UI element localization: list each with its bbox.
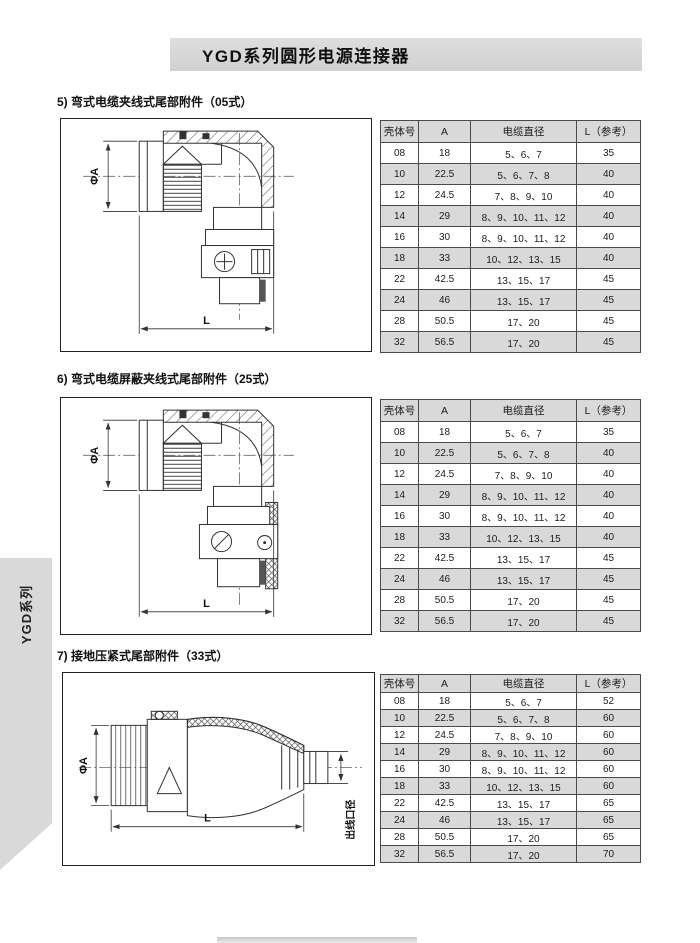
- table-row: 16308、9、10、11、1240: [381, 506, 641, 527]
- section-title-05: 5) 弯式电缆夹线式尾部附件（05式）: [57, 93, 252, 110]
- footer-bar: [217, 937, 417, 943]
- col-cable-diameter: 电缆直径: [471, 121, 577, 143]
- table-cell: 40: [577, 464, 641, 485]
- table-cell: 22.5: [419, 710, 471, 727]
- table-cell: 5、6、7: [471, 143, 577, 164]
- section-title-33: 7) 接地压紧式尾部附件（33式）: [57, 647, 228, 664]
- table-cell: 40: [577, 227, 641, 248]
- table-cell: 50.5: [419, 829, 471, 846]
- table-cell: 45: [577, 611, 641, 632]
- table-cell: 52: [577, 693, 641, 710]
- table-cell: 56.5: [419, 332, 471, 353]
- phi-a-label: ΦA: [78, 757, 90, 774]
- table-row: 14298、9、10、11、1240: [381, 485, 641, 506]
- table-cell: 29: [419, 744, 471, 761]
- table-cell: 30: [419, 506, 471, 527]
- table-cell: 8、9、10、11、12: [471, 744, 577, 761]
- l-label: L: [203, 315, 210, 327]
- col-shell-size: 壳体号: [381, 675, 419, 693]
- table-row: 3256.517、2045: [381, 611, 641, 632]
- table-cell: 40: [577, 506, 641, 527]
- table-cell: 60: [577, 778, 641, 795]
- series-side-tab: YGD系列: [0, 558, 52, 870]
- table-cell: 45: [577, 590, 641, 611]
- table-cell: 8、9、10、11、12: [471, 206, 577, 227]
- table-cell: 08: [381, 422, 419, 443]
- table-cell: 45: [577, 311, 641, 332]
- col-cable-diameter: 电缆直径: [471, 675, 577, 693]
- table-cell: 10: [381, 443, 419, 464]
- col-cable-diameter: 电缆直径: [471, 400, 577, 422]
- table-cell: 45: [577, 290, 641, 311]
- table-cell: 14: [381, 485, 419, 506]
- table-cell: 08: [381, 143, 419, 164]
- table-row: 2242.513、15、1745: [381, 269, 641, 290]
- table-cell: 10、12、13、15: [471, 527, 577, 548]
- table-cell: 70: [577, 846, 641, 863]
- technical-drawing-33: ΦA L 出线口径: [62, 672, 375, 866]
- table-cell: 65: [577, 795, 641, 812]
- table-cell: 5、6、7、8: [471, 443, 577, 464]
- table-cell: 18: [419, 143, 471, 164]
- table-cell: 50.5: [419, 311, 471, 332]
- table-row: 2242.513、15、1765: [381, 795, 641, 812]
- table-cell: 45: [577, 269, 641, 290]
- table-cell: 40: [577, 185, 641, 206]
- table-cell: 46: [419, 290, 471, 311]
- table-row: 183310、12、13、1540: [381, 527, 641, 548]
- table-cell: 17、20: [471, 611, 577, 632]
- table-cell: 22: [381, 795, 419, 812]
- spec-table-25: 壳体号 A 电缆直径 L（参考） 08185、6、7351022.55、6、7、…: [380, 399, 641, 632]
- table-cell: 17、20: [471, 590, 577, 611]
- table-cell: 24.5: [419, 464, 471, 485]
- table-cell: 28: [381, 590, 419, 611]
- table-cell: 65: [577, 829, 641, 846]
- table-cell: 13、15、17: [471, 290, 577, 311]
- table-cell: 12: [381, 464, 419, 485]
- table-cell: 40: [577, 164, 641, 185]
- phi-a-label: ΦA: [89, 168, 101, 185]
- table-cell: 45: [577, 569, 641, 590]
- phi-a-label: ΦA: [89, 447, 101, 464]
- connector-outline: [139, 410, 277, 589]
- l-label: L: [203, 598, 210, 610]
- table-row: 16308、9、10、11、1240: [381, 227, 641, 248]
- table-cell: 42.5: [419, 548, 471, 569]
- table-cell: 17、20: [471, 829, 577, 846]
- table-row: 2850.517、2045: [381, 590, 641, 611]
- table-cell: 33: [419, 248, 471, 269]
- table-row: 2850.517、2065: [381, 829, 641, 846]
- table-cell: 24.5: [419, 727, 471, 744]
- table-cell: 10: [381, 164, 419, 185]
- table-cell: 5、6、7: [471, 693, 577, 710]
- table-cell: 7、8、9、10: [471, 185, 577, 206]
- table-row: 1224.57、8、9、1040: [381, 464, 641, 485]
- table-cell: 29: [419, 206, 471, 227]
- table-cell: 32: [381, 611, 419, 632]
- table-cell: 16: [381, 761, 419, 778]
- series-side-tab-label-wrap: YGD系列: [0, 562, 52, 666]
- table-row: 1224.57、8、9、1060: [381, 727, 641, 744]
- table-cell: 14: [381, 744, 419, 761]
- table-cell: 12: [381, 727, 419, 744]
- table-row: 183310、12、13、1560: [381, 778, 641, 795]
- table-cell: 32: [381, 846, 419, 863]
- table-cell: 16: [381, 227, 419, 248]
- table-cell: 12: [381, 185, 419, 206]
- table-cell: 35: [577, 422, 641, 443]
- table-cell: 65: [577, 812, 641, 829]
- table-cell: 16: [381, 506, 419, 527]
- table-cell: 17、20: [471, 311, 577, 332]
- table-cell: 45: [577, 548, 641, 569]
- table-row: 1022.55、6、7、840: [381, 443, 641, 464]
- table-cell: 8、9、10、11、12: [471, 227, 577, 248]
- table-cell: 7、8、9、10: [471, 727, 577, 744]
- table-cell: 17、20: [471, 846, 577, 863]
- outlet-diameter-label: 出线口径: [344, 800, 357, 840]
- table-row: 14298、9、10、11、1260: [381, 744, 641, 761]
- table-row: 183310、12、13、1540: [381, 248, 641, 269]
- table-cell: 46: [419, 812, 471, 829]
- table-cell: 22.5: [419, 443, 471, 464]
- table-row: 1022.55、6、7、840: [381, 164, 641, 185]
- table-cell: 24: [381, 812, 419, 829]
- table-cell: 13、15、17: [471, 795, 577, 812]
- table-cell: 18: [381, 778, 419, 795]
- col-shell-size: 壳体号: [381, 121, 419, 143]
- table-cell: 22: [381, 548, 419, 569]
- page-title: YGD系列圆形电源连接器: [202, 42, 410, 67]
- table-cell: 40: [577, 485, 641, 506]
- table-cell: 5、6、7、8: [471, 164, 577, 185]
- drawing-25-shielded-elbow-connector: ΦA L: [61, 398, 371, 634]
- table-cell: 8、9、10、11、12: [471, 506, 577, 527]
- table-row: 08185、6、735: [381, 422, 641, 443]
- table-cell: 5、6、7: [471, 422, 577, 443]
- table-cell: 18: [381, 248, 419, 269]
- table-cell: 28: [381, 829, 419, 846]
- table-cell: 5、6、7、8: [471, 710, 577, 727]
- col-l-ref: L（参考）: [577, 121, 641, 143]
- table-row: 16308、9、10、11、1260: [381, 761, 641, 778]
- table-row: 2242.513、15、1745: [381, 548, 641, 569]
- table-cell: 50.5: [419, 590, 471, 611]
- table-cell: 7、8、9、10: [471, 464, 577, 485]
- table-cell: 40: [577, 248, 641, 269]
- table-cell: 42.5: [419, 269, 471, 290]
- table-cell: 24: [381, 569, 419, 590]
- table-cell: 33: [419, 778, 471, 795]
- table-cell: 32: [381, 332, 419, 353]
- table-cell: 30: [419, 227, 471, 248]
- col-l-ref: L（参考）: [577, 400, 641, 422]
- page-header-banner: YGD系列圆形电源连接器: [170, 38, 642, 71]
- col-a: A: [419, 675, 471, 693]
- table-row: 3256.517、2045: [381, 332, 641, 353]
- table-cell: 60: [577, 727, 641, 744]
- table-cell: 18: [419, 693, 471, 710]
- table-cell: 8、9、10、11、12: [471, 761, 577, 778]
- table-cell: 10、12、13、15: [471, 248, 577, 269]
- table-row: 14298、9、10、11、1240: [381, 206, 641, 227]
- table-row: 2850.517、2045: [381, 311, 641, 332]
- table-cell: 24: [381, 290, 419, 311]
- table-cell: 13、15、17: [471, 812, 577, 829]
- table-cell: 13、15、17: [471, 548, 577, 569]
- table-cell: 10: [381, 710, 419, 727]
- spec-table-05: 壳体号 A 电缆直径 L（参考） 08185、6、7351022.55、6、7、…: [380, 120, 641, 353]
- table-row: 08185、6、735: [381, 143, 641, 164]
- table-cell: 17、20: [471, 332, 577, 353]
- table-cell: 45: [577, 332, 641, 353]
- table-cell: 22: [381, 269, 419, 290]
- table-row: 08185、6、752: [381, 693, 641, 710]
- table-header-row: 壳体号 A 电缆直径 L（参考）: [381, 400, 641, 422]
- table-cell: 56.5: [419, 611, 471, 632]
- table-header-row: 壳体号 A 电缆直径 L（参考）: [381, 121, 641, 143]
- l-label: L: [204, 813, 211, 825]
- table-cell: 24.5: [419, 185, 471, 206]
- table-cell: 42.5: [419, 795, 471, 812]
- table-row: 3256.517、2070: [381, 846, 641, 863]
- connector-outline: [139, 131, 273, 304]
- spec-table-33: 壳体号 A 电缆直径 L（参考） 08185、6、7521022.55、6、7、…: [380, 674, 641, 863]
- table-cell: 13、15、17: [471, 569, 577, 590]
- table-cell: 40: [577, 527, 641, 548]
- table-row: 1022.55、6、7、860: [381, 710, 641, 727]
- section-title-25: 6) 弯式电缆屏蔽夹线式尾部附件（25式）: [57, 370, 276, 387]
- table-cell: 35: [577, 143, 641, 164]
- dimension-phi-a: ΦA: [78, 725, 109, 805]
- table-cell: 13、15、17: [471, 269, 577, 290]
- series-side-tab-label: YGD系列: [17, 584, 36, 643]
- table-cell: 40: [577, 443, 641, 464]
- table-cell: 60: [577, 761, 641, 778]
- table-cell: 56.5: [419, 846, 471, 863]
- technical-drawing-05: ΦA L: [60, 118, 372, 352]
- col-shell-size: 壳体号: [381, 400, 419, 422]
- connector-outline: [111, 711, 328, 817]
- table-header-row: 壳体号 A 电缆直径 L（参考）: [381, 675, 641, 693]
- table-cell: 33: [419, 527, 471, 548]
- table-cell: 8、9、10、11、12: [471, 485, 577, 506]
- table-cell: 40: [577, 206, 641, 227]
- table-cell: 46: [419, 569, 471, 590]
- table-row: 244613、15、1745: [381, 569, 641, 590]
- table-cell: 60: [577, 744, 641, 761]
- table-cell: 18: [419, 422, 471, 443]
- table-cell: 10、12、13、15: [471, 778, 577, 795]
- table-cell: 18: [381, 527, 419, 548]
- technical-drawing-25: ΦA L: [60, 397, 372, 635]
- table-cell: 60: [577, 710, 641, 727]
- table-cell: 14: [381, 206, 419, 227]
- table-cell: 22.5: [419, 164, 471, 185]
- table-cell: 28: [381, 311, 419, 332]
- table-cell: 29: [419, 485, 471, 506]
- col-l-ref: L（参考）: [577, 675, 641, 693]
- table-row: 244613、15、1745: [381, 290, 641, 311]
- table-cell: 30: [419, 761, 471, 778]
- table-row: 1224.57、8、9、1040: [381, 185, 641, 206]
- table-cell: 08: [381, 693, 419, 710]
- col-a: A: [419, 400, 471, 422]
- drawing-05-elbow-connector: ΦA L: [61, 119, 371, 351]
- table-row: 244613、15、1765: [381, 812, 641, 829]
- col-a: A: [419, 121, 471, 143]
- dimension-outlet: 出线口径: [328, 751, 357, 839]
- drawing-33-straight-connector: ΦA L 出线口径: [63, 673, 374, 865]
